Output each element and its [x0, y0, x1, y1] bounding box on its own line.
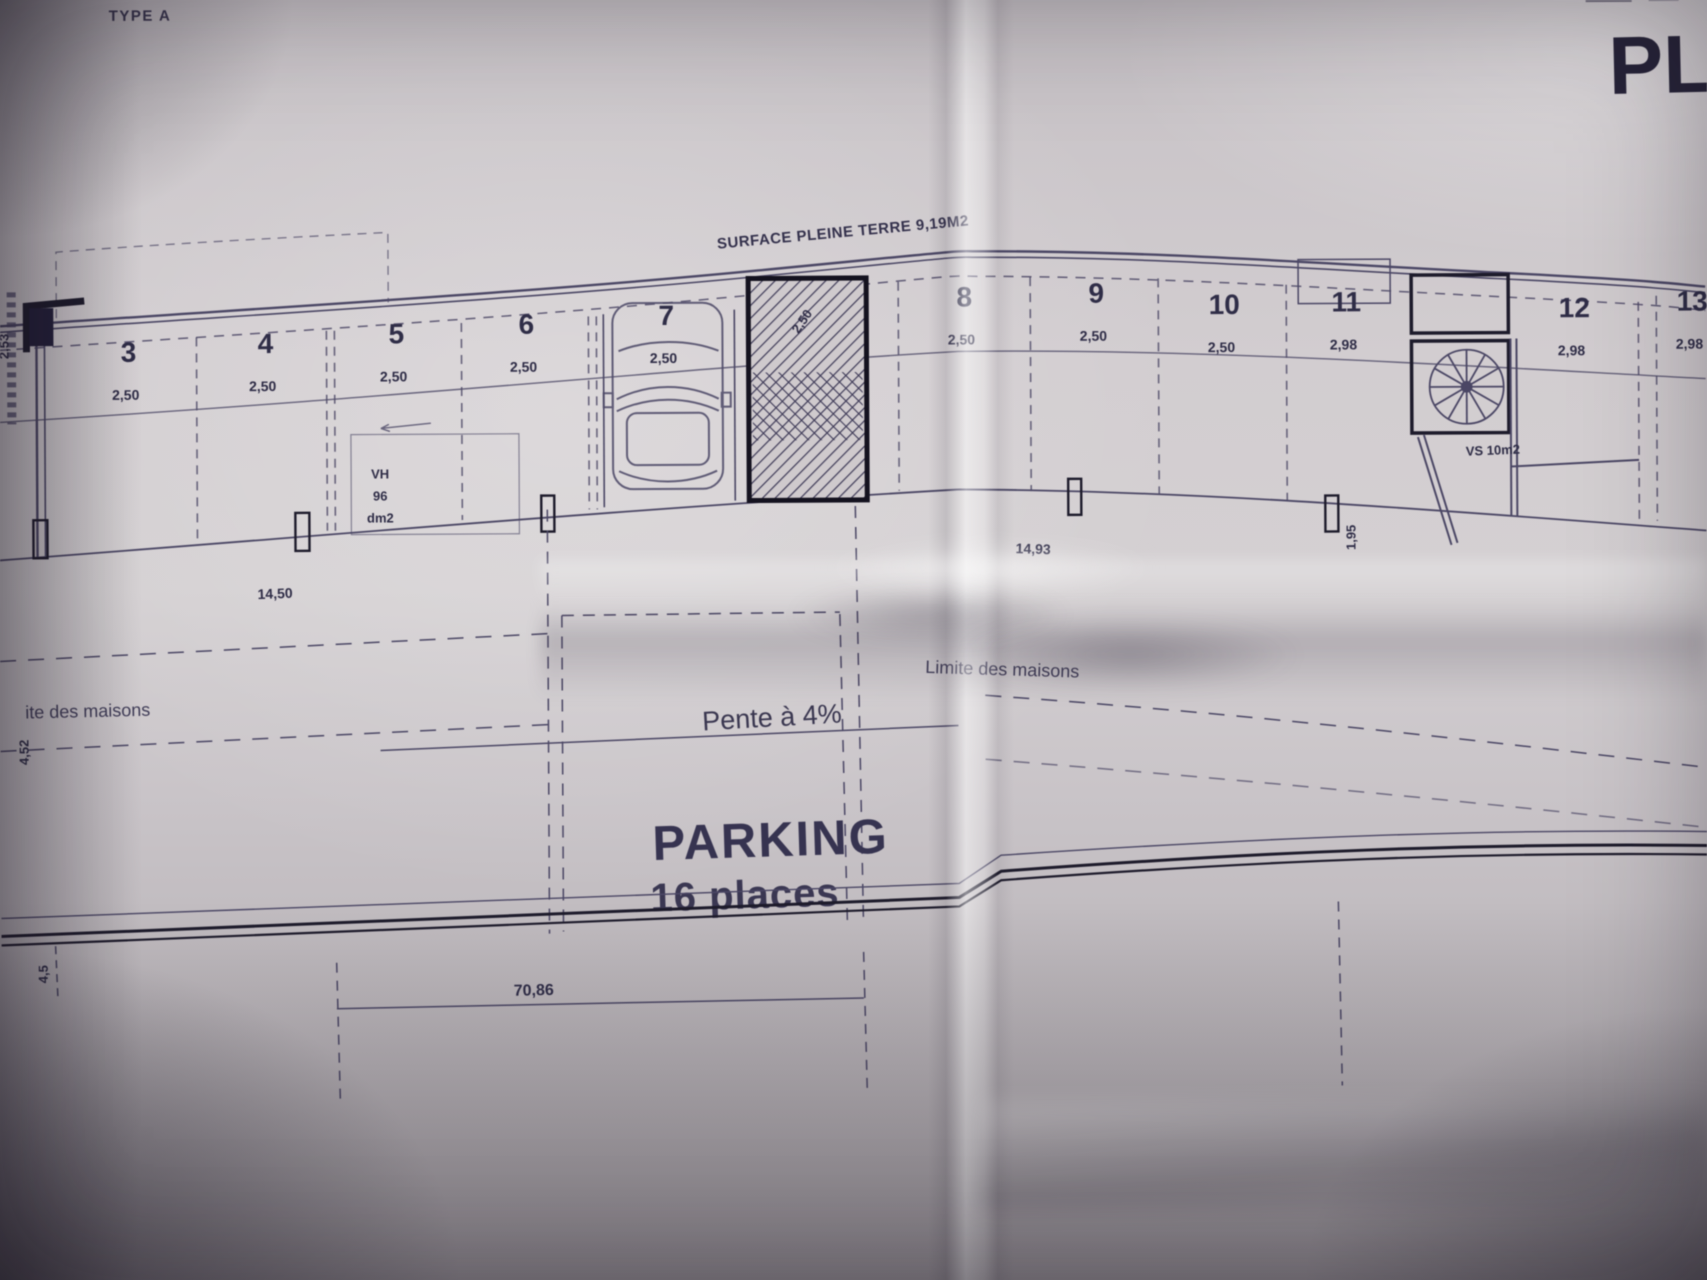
- limite-center-label: Limite des maisons: [925, 657, 1080, 682]
- stall-number: 9: [1088, 278, 1104, 309]
- left-dim-253: 2,53: [0, 334, 12, 359]
- bottom-left-dim: 4,5: [36, 965, 51, 983]
- stall-number: 11: [1331, 286, 1361, 317]
- stall-number: 12: [1559, 292, 1590, 323]
- dim-14-93: 14,93: [1015, 540, 1051, 557]
- stall-number: 6: [518, 309, 534, 340]
- dim-14-50: 14,50: [257, 585, 293, 602]
- stall-number: 7: [658, 300, 674, 331]
- stall-dimension: 2,50: [948, 331, 976, 347]
- setback-dashed-rect: [56, 232, 388, 318]
- dim-70-86: 70,86: [514, 982, 555, 1000]
- stall-number: 5: [389, 318, 405, 349]
- stall-dimension: 2,50: [510, 359, 538, 375]
- left-wall: [11, 292, 85, 558]
- driveway-lines: [0, 502, 1707, 937]
- stall-dimension: 2,50: [380, 368, 408, 384]
- stall-dimension: 2,50: [1208, 339, 1236, 355]
- stall-number: 13: [1677, 286, 1707, 317]
- vh-label-line2: 96: [373, 488, 388, 503]
- stall-dimension: 2,50: [1080, 328, 1108, 344]
- spiral-stair-icon: [1429, 350, 1503, 424]
- photographed-parking-plan: TYPE A PL SURFACE PLEINE TERRE 9,19M2: [0, 0, 1707, 1280]
- bottom-dimension: [55, 901, 1342, 1104]
- stall-dimension: 2,98: [1676, 336, 1704, 352]
- limite-left-label: ite des maisons: [25, 700, 150, 723]
- surface-pleine-terre-label: SURFACE PLEINE TERRE 9,19M2: [716, 212, 969, 252]
- vs-label: VS 10m2: [1465, 442, 1520, 459]
- left-dim-452: 4,52: [17, 740, 32, 765]
- stall-number: 3: [121, 337, 137, 368]
- stall-number: 10: [1209, 289, 1240, 320]
- stall-dimension: 2,50: [112, 387, 140, 403]
- vh-vent: VH 96 dm2: [351, 423, 520, 535]
- vh-label-line1: VH: [371, 466, 389, 481]
- stair-dim-rotated: 1,95: [1343, 525, 1358, 550]
- stall-number: 4: [258, 328, 274, 359]
- stall-dimension: 2,98: [1330, 336, 1358, 352]
- top-edge-text-fragment: [1586, 0, 1679, 2]
- stall-dimension: 2,98: [1558, 342, 1586, 358]
- plan-drawing: TYPE A PL SURFACE PLEINE TERRE 9,19M2: [0, 0, 1707, 1280]
- plan-title-partial: PL: [1607, 19, 1707, 112]
- vh-label-line3: dm2: [367, 510, 394, 525]
- stall-number: 8: [956, 281, 972, 312]
- stall-dimension: 2,50: [650, 350, 678, 366]
- type-a-label: TYPE A: [109, 8, 172, 25]
- hatched-strip: 2,50: [748, 278, 867, 501]
- parking-title: PARKING: [652, 810, 890, 871]
- stall-dimension: 2,50: [249, 378, 277, 394]
